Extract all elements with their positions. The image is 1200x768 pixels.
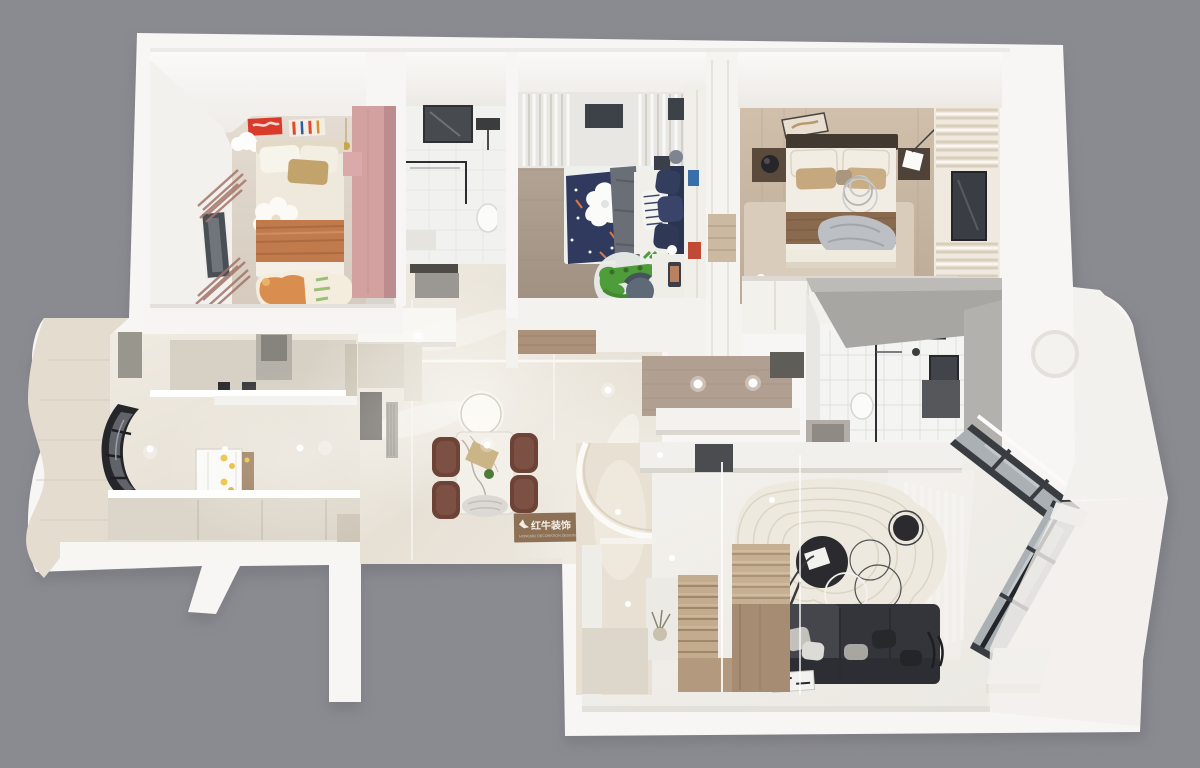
svg-text:红牛装饰: 红牛装饰 xyxy=(531,519,571,533)
